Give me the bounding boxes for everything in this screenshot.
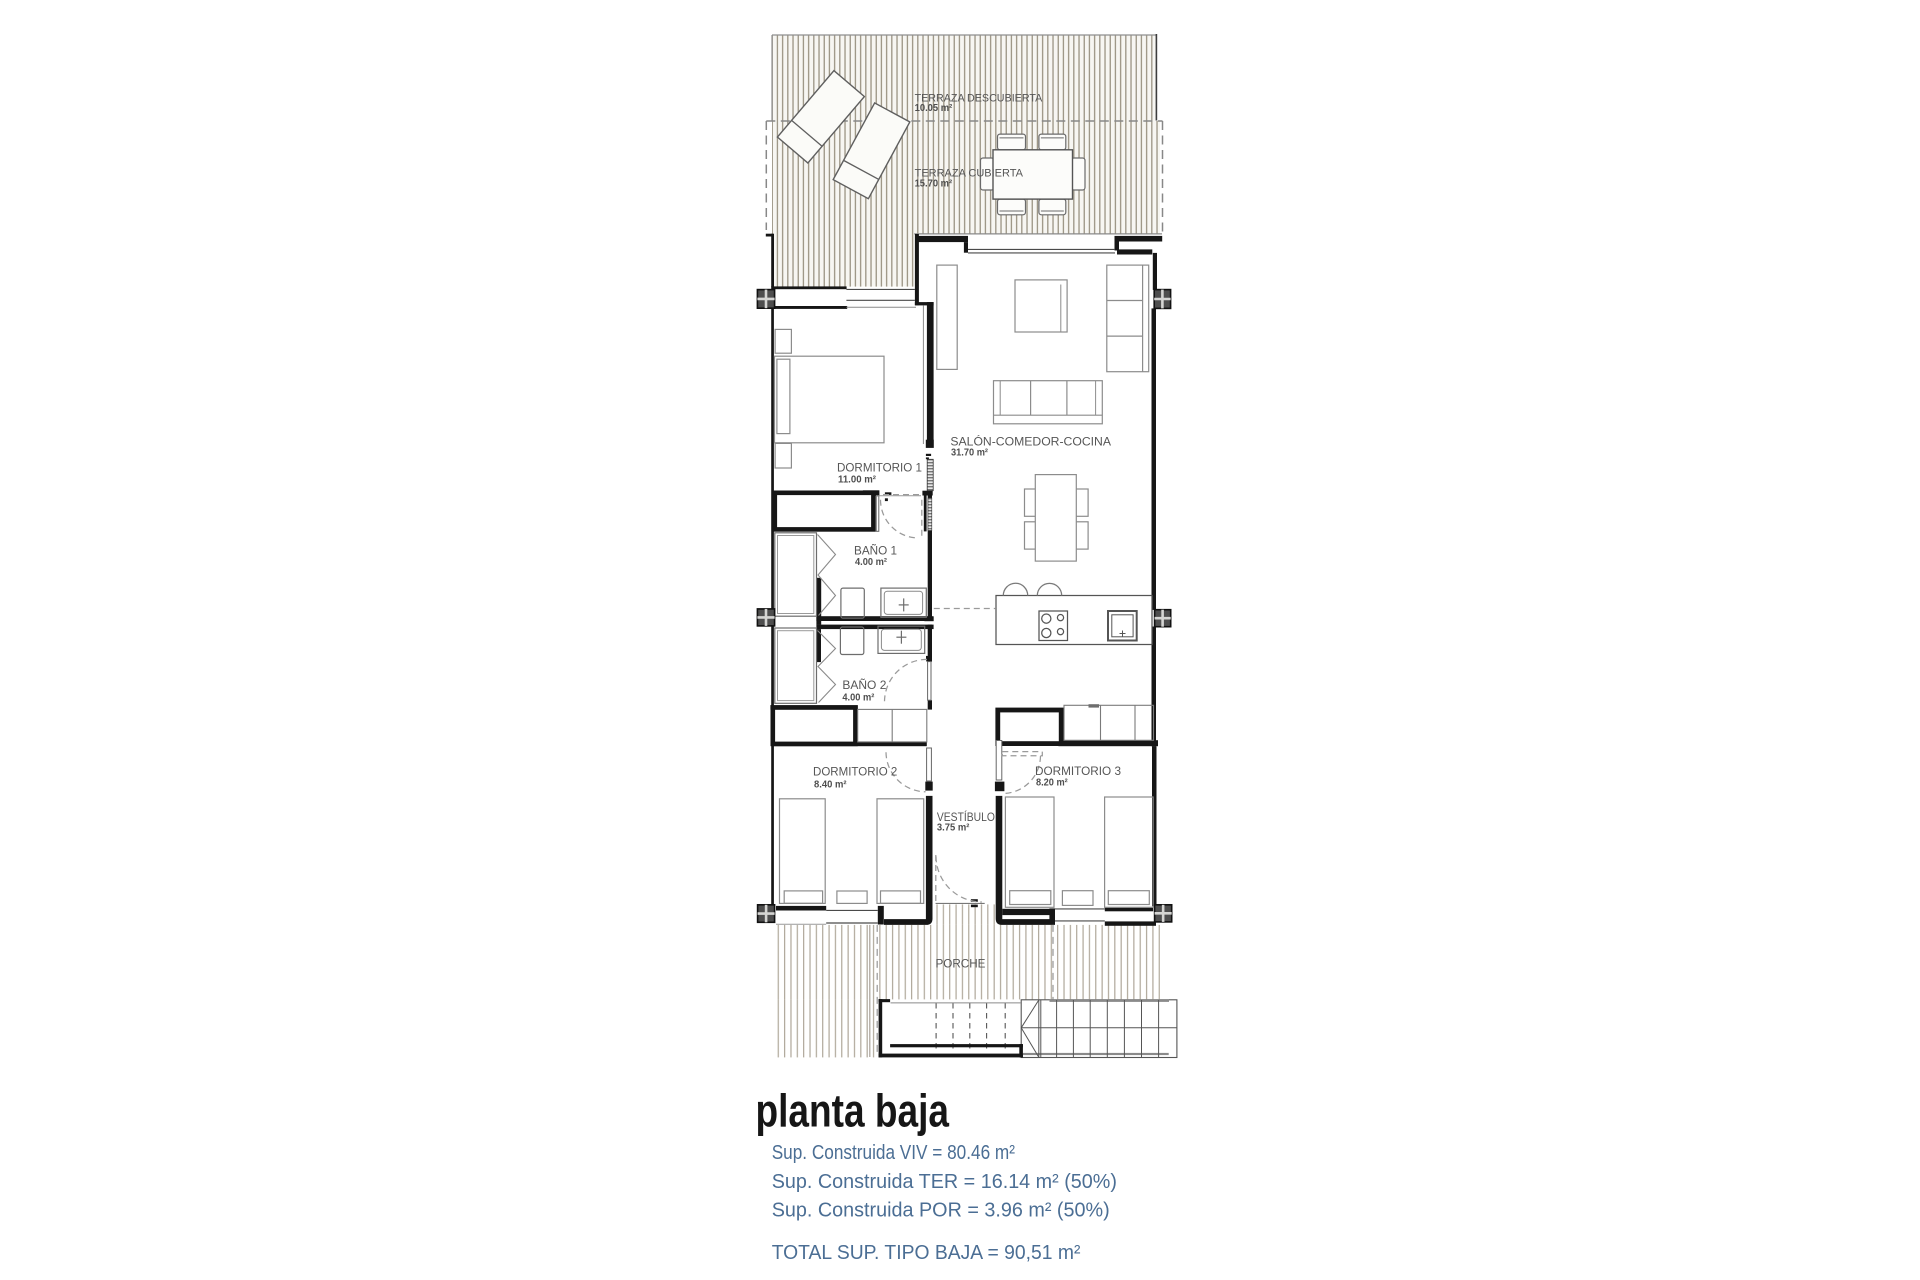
svg-text:4.00 m²: 4.00 m² [855, 557, 888, 568]
svg-text:11.00 m²: 11.00 m² [838, 474, 877, 485]
svg-text:Sup. Construida TER = 16.14 m²: Sup. Construida TER = 16.14 m² (50%) [772, 1170, 1117, 1193]
svg-text:BAÑO 2: BAÑO 2 [842, 678, 886, 692]
svg-text:8.20 m²: 8.20 m² [1036, 777, 1068, 788]
svg-text:PORCHE: PORCHE [936, 956, 986, 970]
svg-text:Sup. Construida POR = 3.96 m²: Sup. Construida POR = 3.96 m² (50%) [772, 1199, 1110, 1222]
svg-text:8.40 m²: 8.40 m² [814, 780, 847, 791]
svg-text:TOTAL SUP. TIPO BAJA = 90,51 m: TOTAL SUP. TIPO BAJA = 90,51 m² [772, 1241, 1081, 1264]
svg-text:DORMITORIO 3: DORMITORIO 3 [1035, 764, 1121, 778]
svg-text:Sup. Construida VIV = 80.46 m²: Sup. Construida VIV = 80.46 m² [772, 1141, 1015, 1164]
svg-text:BAÑO 1: BAÑO 1 [854, 543, 897, 557]
svg-text:DORMITORIO 1: DORMITORIO 1 [837, 461, 922, 475]
svg-text:31.70 m²: 31.70 m² [951, 448, 989, 459]
svg-text:4.00 m²: 4.00 m² [842, 692, 875, 703]
svg-text:10.05 m²: 10.05 m² [915, 103, 953, 114]
svg-text:DORMITORIO 2: DORMITORIO 2 [813, 764, 897, 778]
svg-text:SALÓN-COMEDOR-COCINA: SALÓN-COMEDOR-COCINA [950, 433, 1111, 448]
svg-text:planta baja: planta baja [756, 1085, 950, 1137]
svg-text:3.75 m²: 3.75 m² [937, 823, 970, 834]
svg-text:15.70 m²: 15.70 m² [915, 179, 953, 190]
